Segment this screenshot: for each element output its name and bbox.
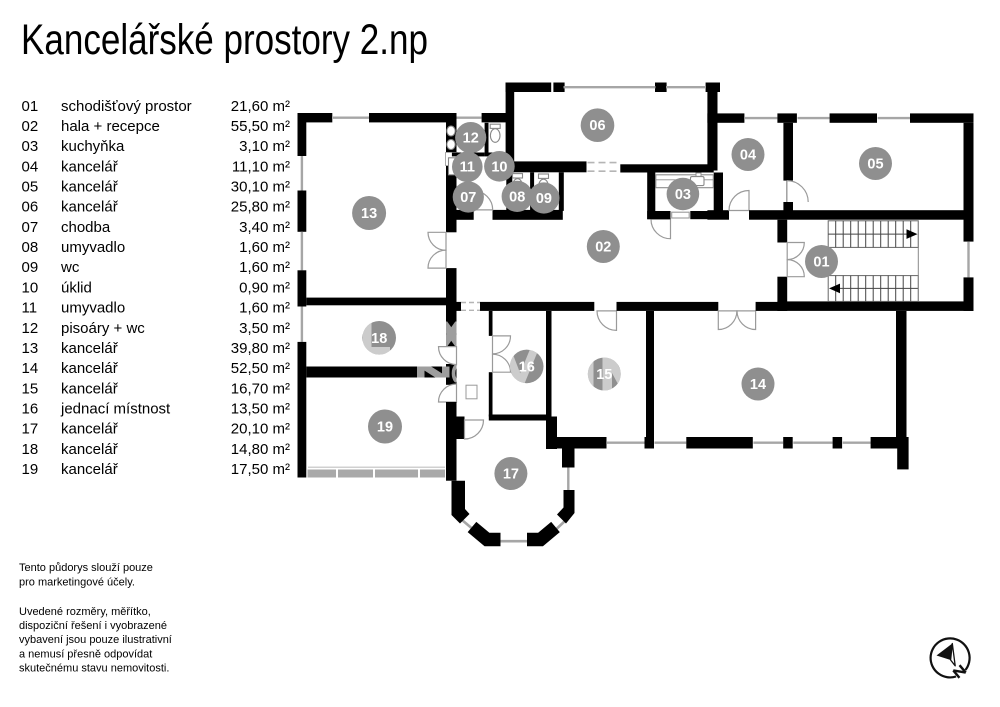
svg-text:11: 11: [22, 300, 38, 317]
svg-text:hala + recepce: hala + recepce: [61, 118, 160, 135]
svg-text:wc: wc: [60, 259, 80, 276]
svg-text:kancelář: kancelář: [61, 179, 119, 196]
svg-text:16,70 m²: 16,70 m²: [231, 380, 290, 397]
svg-text:07: 07: [460, 190, 476, 206]
svg-text:1,60 m²: 1,60 m²: [239, 239, 290, 256]
svg-text:13: 13: [361, 206, 377, 222]
svg-text:06: 06: [589, 118, 605, 134]
svg-text:skutečnému stavu nemovitosti.: skutečnému stavu nemovitosti.: [19, 663, 169, 675]
svg-text:a nemusí přesně odpovídat: a nemusí přesně odpovídat: [19, 649, 152, 661]
svg-text:30,10 m²: 30,10 m²: [231, 179, 290, 196]
svg-text:jednací místnost: jednací místnost: [60, 401, 171, 418]
svg-text:1,60 m²: 1,60 m²: [239, 259, 290, 276]
svg-text:Tento půdorys slouží pouze: Tento půdorys slouží pouze: [19, 562, 153, 574]
svg-text:14: 14: [22, 360, 39, 377]
svg-text:06: 06: [22, 199, 39, 216]
svg-text:kancelář: kancelář: [61, 380, 119, 397]
svg-text:kancelář: kancelář: [61, 340, 119, 357]
svg-text:18: 18: [371, 331, 387, 347]
svg-text:05: 05: [22, 179, 39, 196]
svg-text:08: 08: [22, 239, 39, 256]
svg-text:pisoáry + wc: pisoáry + wc: [61, 320, 145, 337]
svg-text:04: 04: [740, 148, 756, 164]
svg-text:17: 17: [22, 421, 39, 438]
svg-text:15: 15: [22, 380, 39, 397]
svg-text:vybavení jsou pouze ilustrativ: vybavení jsou pouze ilustrativní: [19, 634, 172, 646]
svg-text:20,10 m²: 20,10 m²: [231, 421, 290, 438]
svg-text:17: 17: [503, 467, 519, 483]
svg-text:03: 03: [675, 187, 691, 203]
svg-text:08: 08: [509, 189, 525, 205]
svg-text:17,50 m²: 17,50 m²: [231, 461, 290, 478]
svg-text:11: 11: [460, 160, 475, 176]
svg-text:11,10 m²: 11,10 m²: [232, 158, 290, 175]
svg-text:21,60 m²: 21,60 m²: [231, 98, 290, 115]
svg-text:02: 02: [22, 118, 39, 135]
svg-text:01: 01: [22, 98, 39, 115]
svg-text:kancelář: kancelář: [61, 421, 119, 438]
svg-text:01: 01: [813, 255, 829, 271]
svg-text:16: 16: [22, 401, 39, 418]
svg-text:13: 13: [22, 340, 39, 357]
svg-text:13,50 m²: 13,50 m²: [231, 401, 290, 418]
svg-text:10: 10: [22, 279, 39, 296]
svg-text:19: 19: [377, 420, 393, 436]
svg-text:03: 03: [22, 138, 39, 155]
svg-text:kancelář: kancelář: [61, 360, 119, 377]
svg-text:úklid: úklid: [61, 279, 92, 296]
svg-text:pro marketingové účely.: pro marketingové účely.: [19, 577, 135, 589]
svg-text:dispoziční řešení i vyobrazené: dispoziční řešení i vyobrazené: [19, 620, 167, 632]
svg-text:3,50 m²: 3,50 m²: [239, 320, 290, 337]
svg-text:14: 14: [750, 377, 766, 393]
svg-text:1,60 m²: 1,60 m²: [239, 300, 290, 317]
svg-text:39,80 m²: 39,80 m²: [231, 340, 290, 357]
svg-text:umyvadlo: umyvadlo: [61, 300, 125, 317]
svg-text:kancelář: kancelář: [61, 461, 119, 478]
svg-text:schodišťový prostor: schodišťový prostor: [61, 98, 192, 115]
svg-text:0,90 m²: 0,90 m²: [239, 279, 290, 296]
svg-text:12: 12: [22, 320, 39, 337]
svg-text:25,80 m²: 25,80 m²: [231, 199, 290, 216]
svg-text:04: 04: [22, 158, 39, 175]
svg-text:kancelář: kancelář: [61, 441, 119, 458]
svg-text:52,50 m²: 52,50 m²: [231, 360, 290, 377]
svg-text:umyvadlo: umyvadlo: [61, 239, 125, 256]
svg-text:kancelář: kancelář: [61, 199, 119, 216]
svg-text:3,40 m²: 3,40 m²: [239, 219, 290, 236]
svg-text:12: 12: [463, 131, 479, 147]
svg-text:18: 18: [22, 441, 39, 458]
svg-text:05: 05: [867, 157, 883, 173]
svg-text:10: 10: [491, 159, 507, 175]
svg-text:Uvedené rozměry, měřítko,: Uvedené rozměry, měřítko,: [19, 606, 151, 618]
svg-text:55,50 m²: 55,50 m²: [231, 118, 290, 135]
svg-text:chodba: chodba: [61, 219, 111, 236]
svg-text:kuchyňka: kuchyňka: [61, 138, 125, 155]
svg-text:02: 02: [595, 240, 611, 256]
svg-text:09: 09: [22, 259, 39, 276]
svg-text:07: 07: [22, 219, 39, 236]
svg-text:3,10 m²: 3,10 m²: [239, 138, 290, 155]
svg-text:14,80 m²: 14,80 m²: [231, 441, 290, 458]
svg-text:19: 19: [22, 461, 39, 478]
svg-text:Kancelářské prostory 2.np: Kancelářské prostory 2.np: [21, 16, 428, 64]
svg-text:09: 09: [536, 191, 552, 207]
svg-text:kancelář: kancelář: [61, 158, 119, 175]
